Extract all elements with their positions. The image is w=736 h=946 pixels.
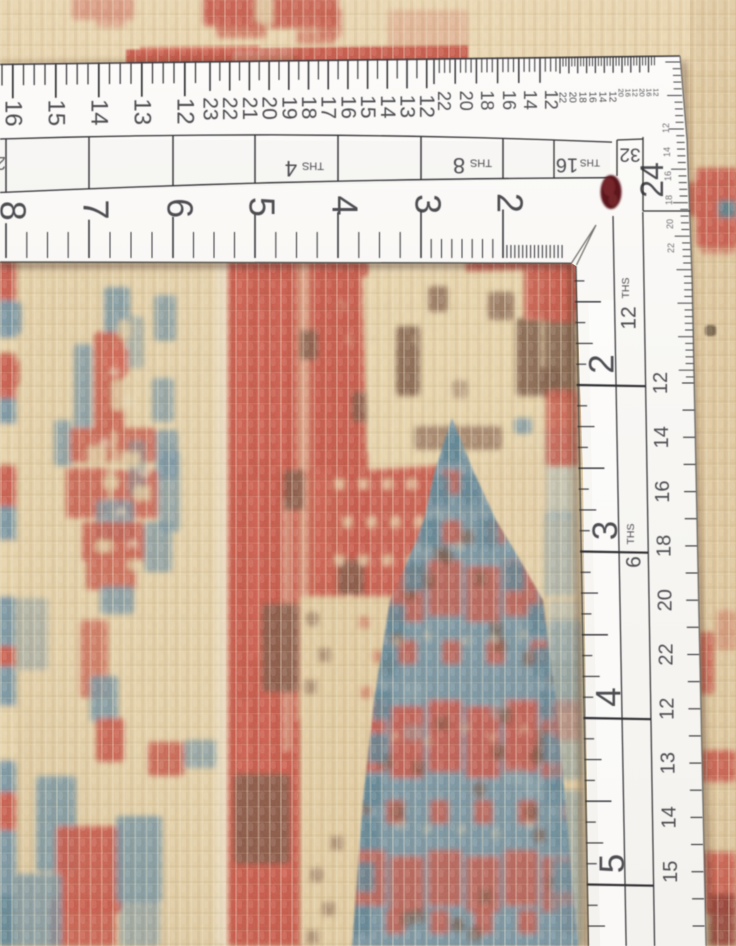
svg-text:16: 16 <box>0 100 27 127</box>
svg-text:16: 16 <box>499 90 519 110</box>
svg-text:32: 32 <box>619 144 640 165</box>
svg-text:15: 15 <box>356 95 379 118</box>
svg-text:22: 22 <box>666 243 676 253</box>
svg-text:14: 14 <box>662 147 672 157</box>
svg-text:6: 6 <box>160 198 201 218</box>
svg-text:23: 23 <box>199 97 222 120</box>
svg-text:19: 19 <box>277 96 300 119</box>
svg-text:8: 8 <box>0 201 34 221</box>
svg-text:16: 16 <box>556 153 578 175</box>
svg-text:12: 12 <box>657 698 679 720</box>
svg-text:22: 22 <box>557 92 568 104</box>
svg-text:18: 18 <box>297 96 320 119</box>
svg-text:2: 2 <box>583 354 622 373</box>
svg-text:3: 3 <box>586 521 625 540</box>
svg-text:16: 16 <box>587 92 598 104</box>
svg-text:THS: THS <box>625 524 637 545</box>
svg-text:12: 12 <box>661 123 671 133</box>
svg-text:16: 16 <box>336 96 359 119</box>
svg-text:2: 2 <box>490 193 531 213</box>
svg-text:4: 4 <box>325 195 366 215</box>
svg-text:14: 14 <box>597 91 608 103</box>
svg-text:16: 16 <box>652 480 674 502</box>
svg-text:THS: THS <box>302 160 324 172</box>
svg-text:20: 20 <box>456 91 476 111</box>
svg-text:4: 4 <box>285 156 297 181</box>
svg-text:17: 17 <box>317 96 340 119</box>
svg-text:12: 12 <box>607 91 618 103</box>
svg-text:20: 20 <box>654 589 676 611</box>
svg-text:5: 5 <box>242 197 283 217</box>
svg-text:14: 14 <box>659 806 681 828</box>
svg-text:THS: THS <box>620 278 632 299</box>
svg-text:6: 6 <box>623 556 646 568</box>
svg-text:22: 22 <box>434 91 454 111</box>
svg-text:13: 13 <box>396 95 419 118</box>
svg-text:14: 14 <box>651 426 673 448</box>
svg-text:18: 18 <box>653 535 675 557</box>
svg-text:12: 12 <box>650 372 672 394</box>
svg-text:7: 7 <box>76 199 117 219</box>
svg-text:12: 12 <box>618 306 641 329</box>
svg-text:18: 18 <box>664 195 674 205</box>
svg-text:18: 18 <box>577 92 588 104</box>
svg-text:22: 22 <box>218 97 241 120</box>
svg-text:8: 8 <box>453 153 465 178</box>
svg-text:13: 13 <box>658 752 680 774</box>
svg-text:21: 21 <box>238 97 261 120</box>
svg-text:22: 22 <box>655 643 677 665</box>
svg-text:14: 14 <box>376 95 399 119</box>
svg-text:13: 13 <box>129 98 156 125</box>
svg-text:20: 20 <box>567 92 578 104</box>
svg-text:12: 12 <box>172 98 199 125</box>
svg-text:18: 18 <box>477 90 497 110</box>
svg-text:16: 16 <box>663 171 673 181</box>
svg-text:12: 12 <box>652 88 661 96</box>
svg-text:14: 14 <box>86 99 113 126</box>
svg-text:15: 15 <box>43 99 70 126</box>
svg-text:4: 4 <box>590 687 629 706</box>
svg-text:THS: THS <box>470 157 492 169</box>
svg-text:20: 20 <box>665 219 675 229</box>
svg-text:5: 5 <box>593 854 632 873</box>
svg-text:15: 15 <box>660 861 682 883</box>
svg-text:THS: THS <box>580 156 600 167</box>
svg-text:14: 14 <box>520 90 540 110</box>
svg-text:2: 2 <box>0 153 6 173</box>
svg-text:3: 3 <box>408 194 449 214</box>
svg-text:20: 20 <box>258 96 281 119</box>
